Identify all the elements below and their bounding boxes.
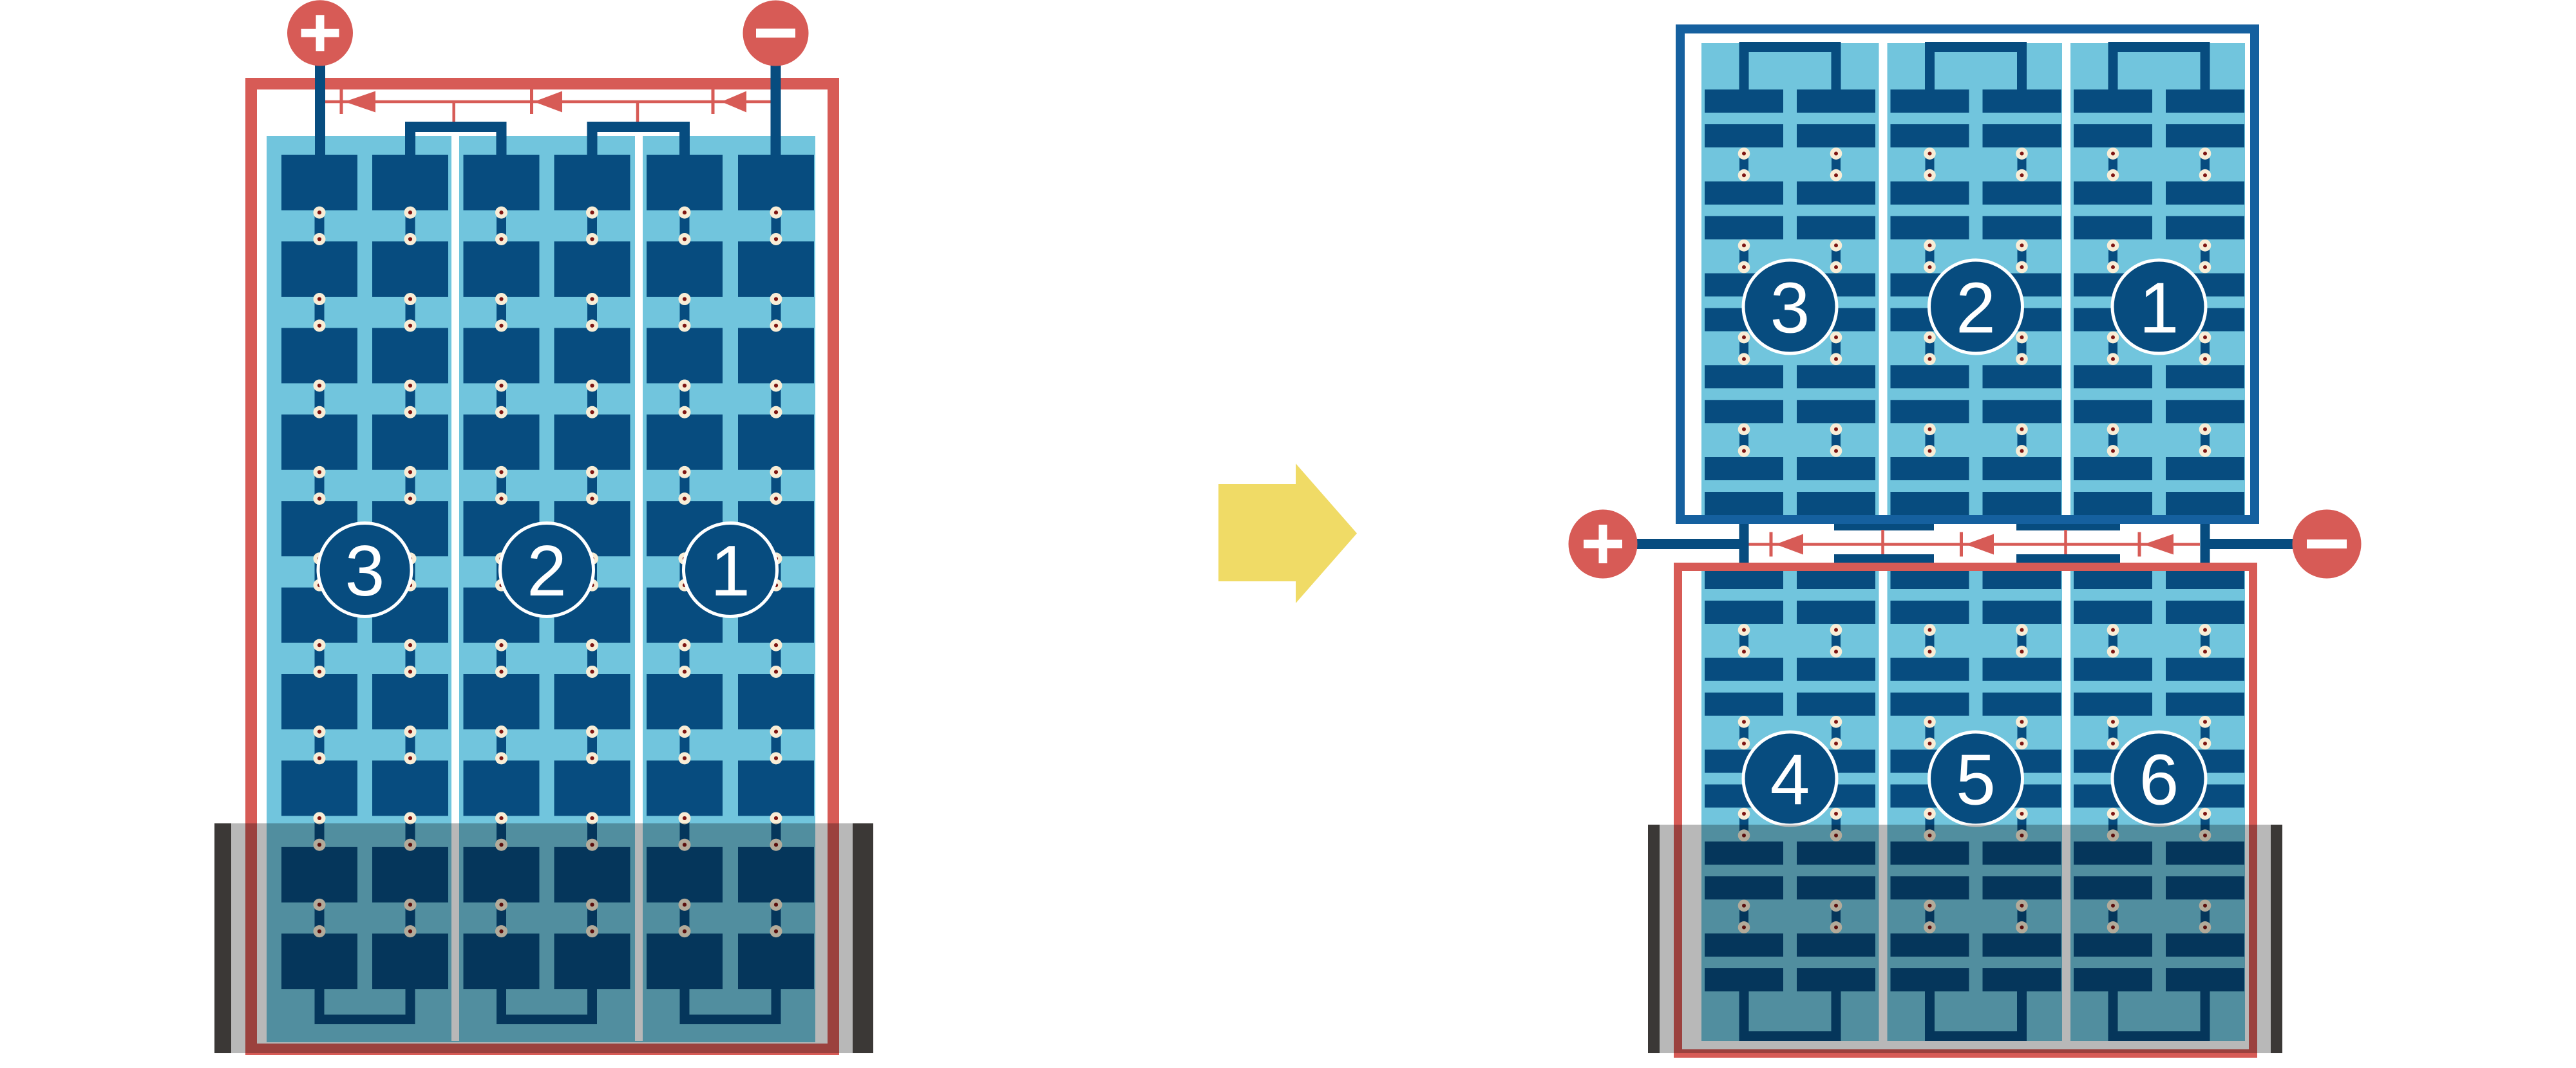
svg-text:6: 6 — [2139, 740, 2179, 820]
svg-text:3: 3 — [1770, 268, 1810, 348]
svg-text:2: 2 — [527, 531, 567, 611]
svg-text:2: 2 — [1956, 268, 1996, 348]
svg-text:1: 1 — [2139, 268, 2179, 348]
svg-text:5: 5 — [1956, 740, 1996, 820]
svg-text:1: 1 — [710, 531, 750, 611]
svg-text:3: 3 — [345, 531, 385, 611]
svg-text:4: 4 — [1770, 740, 1810, 820]
